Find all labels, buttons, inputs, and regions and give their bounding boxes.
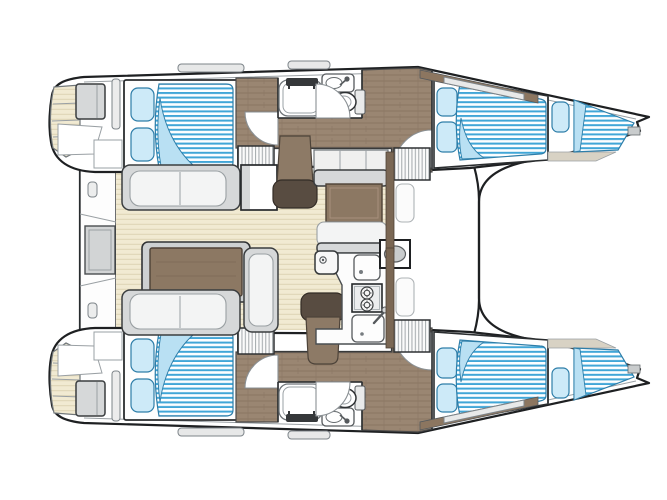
forward-seat — [396, 278, 414, 316]
bench-cushion — [130, 294, 226, 329]
salon-wood-wall — [386, 152, 394, 252]
coachroof-front-edge — [479, 160, 534, 340]
appliance-knob-dot — [322, 259, 324, 261]
cockpit-table-top — [150, 248, 242, 296]
forward-seat — [396, 184, 414, 222]
catamaran-floorplan — [0, 0, 667, 500]
bench-cushion — [130, 171, 226, 206]
storage-box-edge — [242, 166, 250, 209]
platform-cleat — [88, 182, 97, 197]
sink-drain — [359, 270, 363, 274]
interior-walls — [386, 152, 394, 348]
stove-burner — [361, 287, 373, 299]
galley-appliance — [315, 251, 338, 274]
salon-cabinet-row — [314, 150, 388, 172]
platform-cleat — [88, 303, 97, 318]
stove-burner — [361, 299, 373, 311]
chair-seat — [277, 136, 313, 184]
sink-drain — [360, 332, 364, 336]
chair-back — [273, 180, 317, 208]
salon-table-top — [326, 184, 382, 222]
salon-wood-wall — [386, 248, 394, 348]
galley-sink — [354, 255, 380, 280]
bench-cushion — [249, 254, 273, 326]
